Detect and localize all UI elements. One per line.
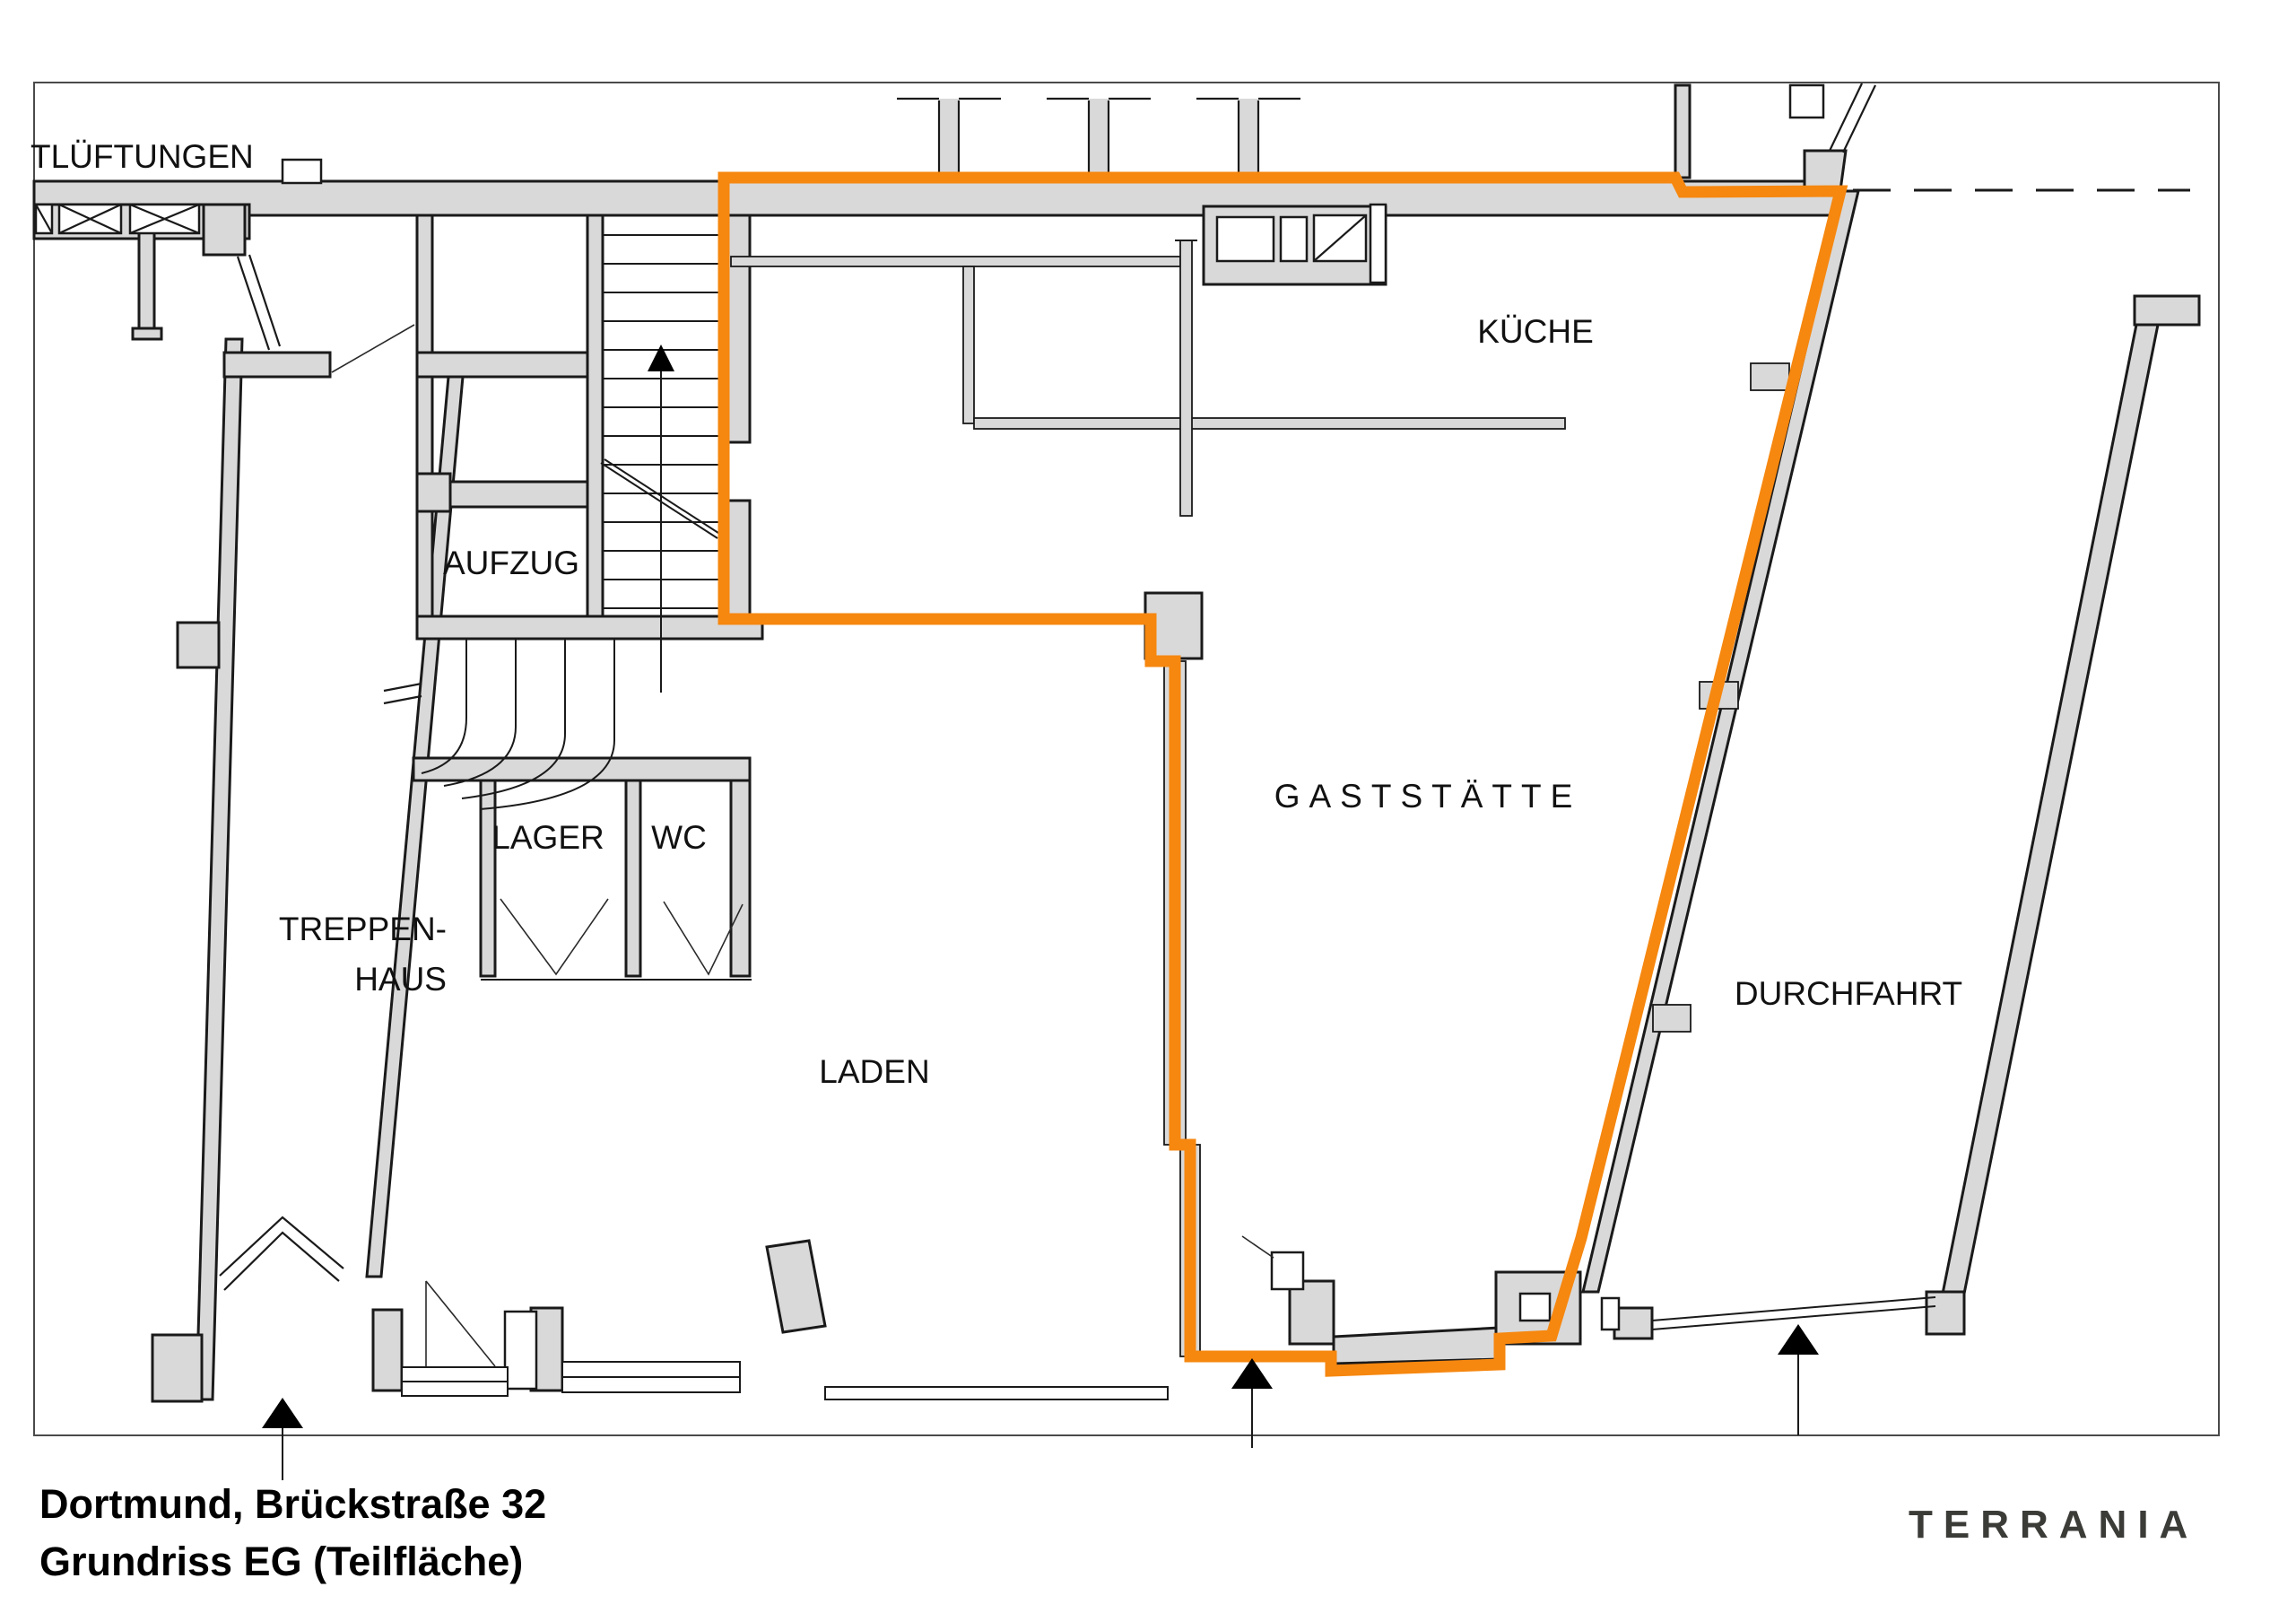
room-label-treppenhaus-line2: HAUS <box>354 961 447 998</box>
room-label-aufzug: AUFZUG <box>443 545 579 581</box>
floor-plan-drawing: TLÜFTUNGEN AUFZUG LAGER WC TREPPEN- HAUS… <box>0 0 2296 1613</box>
room-label-treppenhaus-line1: TREPPEN- <box>279 911 447 947</box>
plan-title-line2: Grundriss EG (Teilfläche) <box>39 1539 523 1584</box>
kitchen-door-gap <box>1370 205 1386 283</box>
kitchen-fixture-icon <box>1281 217 1307 261</box>
plan-border <box>34 83 2219 1435</box>
room-label-lager: LAGER <box>491 819 604 856</box>
plan-title-line1: Dortmund, Brückstraße 32 <box>39 1481 546 1527</box>
floor-plan-page: TLÜFTUNGEN AUFZUG LAGER WC TREPPEN- HAUS… <box>0 0 2296 1613</box>
kitchen-fixture-icon <box>1217 217 1274 261</box>
window-sill <box>825 1387 1168 1399</box>
room-label-laden: LADEN <box>819 1053 929 1090</box>
terrania-logo: TERRANIA <box>1909 1503 2198 1547</box>
facade-columns <box>897 99 1300 181</box>
room-label-durchfahrt: DURCHFAHRT <box>1735 975 1962 1012</box>
room-label-wc: WC <box>651 819 707 856</box>
room-label-gaststaette: GASTSTÄTTE <box>1274 778 1582 815</box>
room-label-ventilation: TLÜFTUNGEN <box>30 138 254 175</box>
room-label-kueche: KÜCHE <box>1477 313 1594 350</box>
